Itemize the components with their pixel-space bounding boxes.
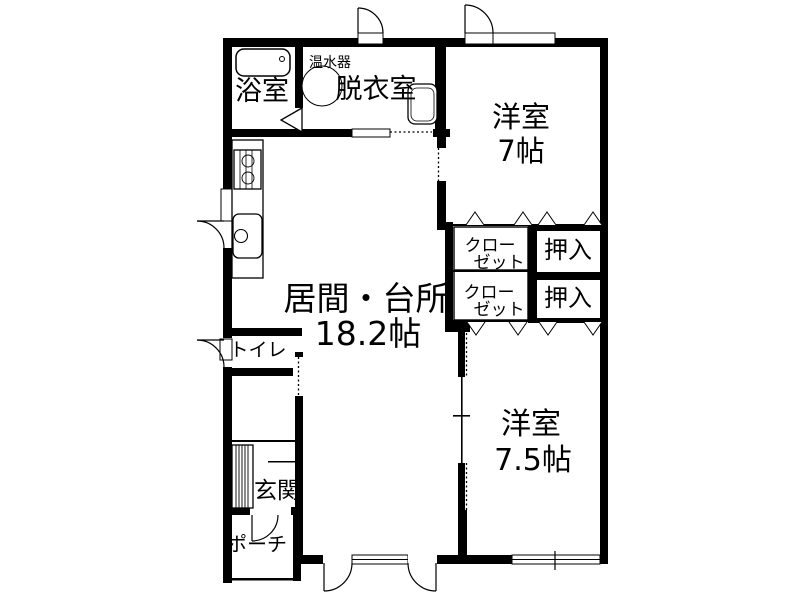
room-label-water-heater: 温水器 (309, 55, 351, 71)
shoe-cabinet-icon (232, 445, 253, 508)
swing-door-dressing-top (358, 8, 383, 33)
wall-bath-bottom (223, 129, 352, 137)
room-label-bedroom75-name: 洋室 (501, 407, 561, 442)
opening-entrance (250, 506, 291, 516)
wall-living-room7-a (437, 133, 446, 148)
room-label-bedroom7-name: 洋室 (492, 100, 550, 134)
bathroom-folding-door-icon (281, 108, 302, 132)
oshiire1-border-top (533, 226, 600, 231)
swing-door-bedroom7-top (465, 5, 493, 33)
room-label-bathroom: 浴室 (235, 76, 289, 107)
sliding-door-tick-75 (453, 415, 470, 417)
swing-door-kitchen-west (197, 221, 224, 248)
sliding-door-leaf-75 (461, 377, 463, 463)
room-label-dressing-room: 脱衣室 (336, 74, 417, 105)
bathtub-icon (236, 49, 290, 76)
wall-left (223, 38, 232, 583)
closet-marker-up-4 (584, 212, 602, 225)
room-label-bedroom75-size: 7.5帖 (494, 443, 572, 478)
room-label-toilet: トイレ (229, 339, 286, 361)
genkan-inner-line (268, 461, 295, 463)
closet-marker-up-2 (514, 212, 532, 225)
room-label-closet1-line2: ゼット (474, 253, 525, 273)
porch-bottom-line (232, 578, 293, 581)
swing-door-french-left (324, 563, 352, 591)
floor-plan: 浴室温水器脱衣室洋室7帖クローゼット押入クローゼット押入居間・台所18.2帖トイ… (0, 0, 800, 600)
wall-living-room75-c (458, 510, 467, 563)
room-label-genkan: 玄関 (254, 478, 300, 504)
room-label-living-size: 18.2帖 (315, 314, 421, 353)
closet-marker-down-3 (539, 322, 557, 335)
wall-toilet-bottom (232, 368, 293, 376)
floor-plan-page: 浴室温水器脱衣室洋室7帖クローゼット押入クローゼット押入居間・台所18.2帖トイ… (0, 0, 800, 600)
opening-french-right (408, 554, 437, 565)
opening-french-left (323, 554, 352, 565)
room-label-bedroom7-size: 7帖 (497, 134, 544, 168)
room-label-oshiire2: 押入 (544, 284, 592, 312)
opening-dressing-south (352, 129, 390, 137)
wall-right (600, 38, 608, 563)
wall-hall-tick (295, 352, 303, 357)
room-label-closet2-line2: ゼット (474, 300, 525, 320)
wall-closet-corner-bottom (445, 322, 470, 332)
door-leaf-bedroom7-top (465, 33, 493, 44)
closet-marker-up-1 (466, 212, 484, 225)
door-leaf-kitchen-west (221, 189, 232, 221)
room-label-oshiire1: 押入 (544, 236, 592, 264)
room-label-living-name: 居間・台所 (284, 279, 449, 318)
wall-bath-right (295, 47, 303, 108)
room-label-porch: ポーチ (227, 532, 287, 556)
closet-marker-down-2 (509, 322, 527, 335)
closet-marker-up-3 (538, 212, 556, 225)
oshiire-border-mid (533, 272, 600, 280)
wall-living-room75-b (458, 463, 465, 510)
wall-living-room75-a (458, 330, 465, 377)
swing-door-french-right (408, 563, 436, 591)
window-top (493, 33, 555, 44)
genkan-step-line (232, 440, 302, 442)
wall-closet-corner-top (437, 222, 453, 230)
wall-toilet-top (232, 328, 302, 336)
closet-marker-down-4 (584, 322, 602, 335)
door-leaf-dressing-top (358, 33, 383, 44)
